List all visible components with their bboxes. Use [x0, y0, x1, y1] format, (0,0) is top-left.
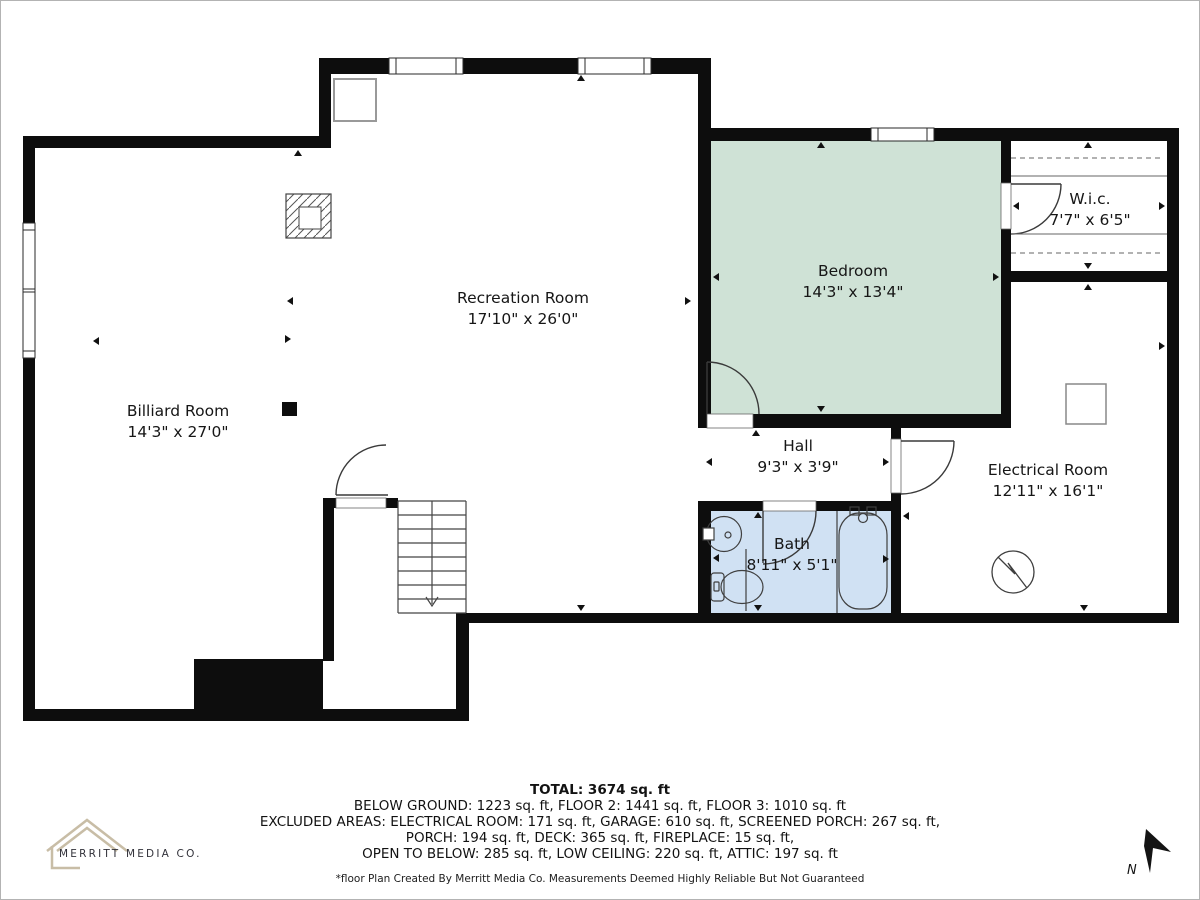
room-dims: 8'11" x 5'1" — [712, 555, 872, 576]
north-label: N — [1127, 863, 1137, 878]
room-dims: 9'3" x 3'9" — [718, 457, 878, 478]
room-label-bath: Bath 8'11" x 5'1" — [712, 534, 872, 576]
disclaimer-note: *floor Plan Created By Merritt Media Co.… — [1, 871, 1199, 887]
area-line-2: EXCLUDED AREAS: ELECTRICAL ROOM: 171 sq.… — [1, 814, 1199, 830]
fireplace — [286, 194, 331, 238]
total-area: TOTAL: 3674 sq. ft — [1, 782, 1199, 798]
room-name: Bedroom — [703, 261, 1003, 282]
room-label-bedroom: Bedroom 14'3" x 13'4" — [703, 261, 1003, 303]
window-top-2 — [578, 58, 651, 74]
area-line-1: BELOW GROUND: 1223 sq. ft, FLOOR 2: 1441… — [1, 798, 1199, 814]
room-name: Billiard Room — [28, 401, 328, 422]
utility-box — [1066, 384, 1106, 424]
room-label-electrical: Electrical Room 12'11" x 16'1" — [898, 460, 1198, 502]
column-box — [334, 79, 376, 121]
room-name: Electrical Room — [898, 460, 1198, 481]
room-dims: 14'3" x 13'4" — [703, 282, 1003, 303]
area-line-3: PORCH: 194 sq. ft, DECK: 365 sq. ft, FIR… — [1, 830, 1199, 846]
exterior-stair-mass — [194, 659, 323, 711]
room-label-recreation: Recreation Room 17'10" x 26'0" — [373, 288, 673, 330]
room-name: Hall — [718, 436, 878, 457]
electrical-symbol-icon — [992, 551, 1034, 593]
room-label-wic: W.i.c. 7'7" x 6'5" — [1010, 189, 1170, 231]
room-name: Recreation Room — [373, 288, 673, 309]
room-label-hall: Hall 9'3" x 3'9" — [718, 436, 878, 478]
window-top-1 — [389, 58, 463, 74]
walls — [23, 58, 1179, 721]
area-summary: TOTAL: 3674 sq. ft BELOW GROUND: 1223 sq… — [1, 782, 1199, 887]
window-bedroom — [871, 128, 934, 141]
room-dims: 7'7" x 6'5" — [1010, 210, 1170, 231]
room-dims: 12'11" x 16'1" — [898, 481, 1198, 502]
room-label-billiard: Billiard Room 14'3" x 27'0" — [28, 401, 328, 443]
room-name: W.i.c. — [1010, 189, 1170, 210]
room-name: Bath — [712, 534, 872, 555]
window-left-wall — [23, 223, 35, 358]
floor-plan-drawing — [1, 1, 1200, 900]
room-dims: 17'10" x 26'0" — [373, 309, 673, 330]
staircase — [398, 501, 466, 613]
room-dims: 14'3" x 27'0" — [28, 422, 328, 443]
company-logo-text: MERRITT MEDIA CO. — [59, 848, 202, 860]
floor-plan-page: Recreation Room 17'10" x 26'0" Billiard … — [0, 0, 1200, 900]
